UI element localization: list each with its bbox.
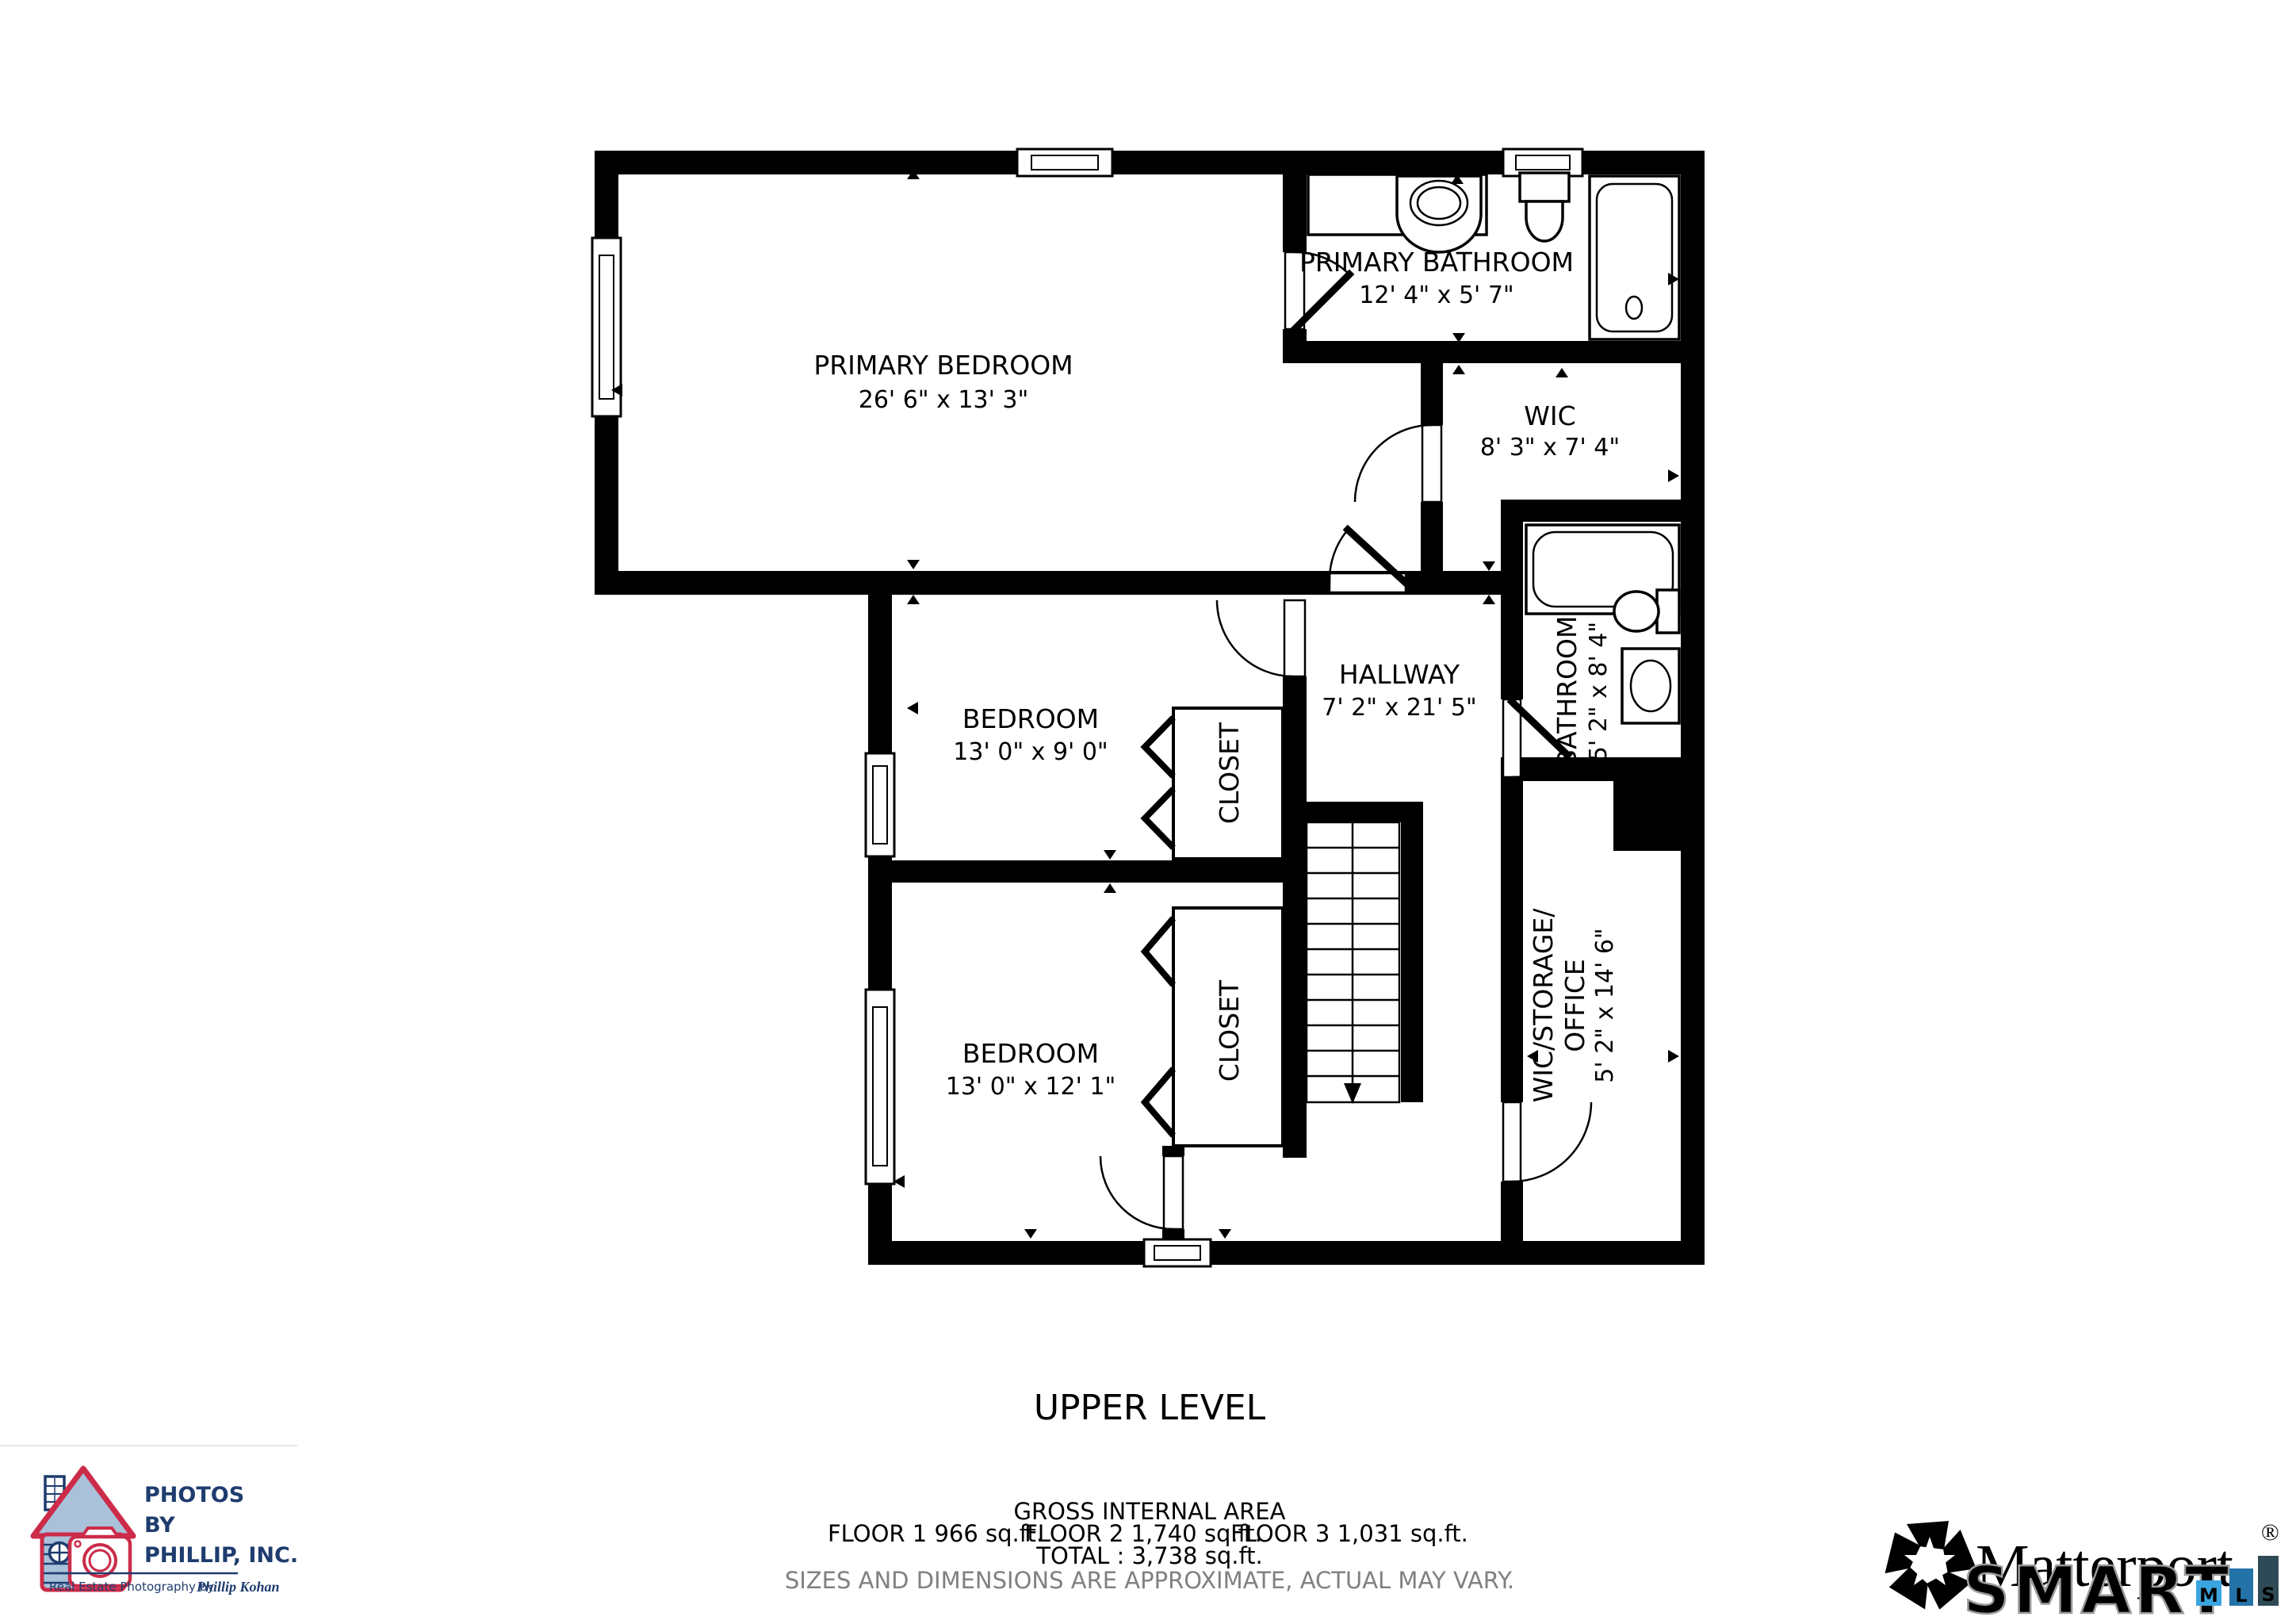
floor-plan: PRIMARY BEDROOM 26' 6" x 13' 3" PRIMARY … xyxy=(592,149,1705,1266)
mls-m: M xyxy=(2199,1584,2218,1607)
label-primary-bathroom: PRIMARY BATHROOM xyxy=(1299,247,1574,278)
logo-line2: BY xyxy=(144,1513,175,1538)
door-office xyxy=(1503,1102,1591,1182)
wall-office-left-upper xyxy=(1501,777,1523,1102)
label-office-line1: WIC/STORAGE/ xyxy=(1528,908,1559,1103)
logo-tagline-name: Phillip Kohan xyxy=(196,1579,280,1595)
dims-primary-bedroom: 26' 6" x 13' 3" xyxy=(859,386,1029,414)
door-wic xyxy=(1355,425,1441,502)
label-primary-bedroom: PRIMARY BEDROOM xyxy=(813,350,1073,381)
wall-bathroom-left-upper xyxy=(1501,500,1523,699)
label-hallway: HALLWAY xyxy=(1339,659,1460,690)
plan-footer: UPPER LEVEL GROSS INTERNAL AREA FLOOR 1 … xyxy=(785,1388,1514,1594)
wall-wic-left-upper xyxy=(1421,363,1443,425)
mls-l: L xyxy=(2235,1584,2247,1607)
sink-icon xyxy=(1622,649,1679,723)
dims-primary-bathroom: 12' 4" x 5' 7" xyxy=(1359,282,1513,309)
logo-divider-line xyxy=(0,1445,297,1446)
door-bedroom-bottom xyxy=(1100,1156,1183,1229)
wall-bedroom-divider xyxy=(868,860,1307,883)
house-camera-icon xyxy=(33,1469,133,1590)
wall-office-notch xyxy=(1613,781,1705,851)
mls-s: S xyxy=(2261,1584,2275,1606)
label-office-line2: OFFICE xyxy=(1559,959,1590,1052)
wall-bottom xyxy=(868,1241,1705,1265)
dims-bedroom-bottom: 13' 0" x 12' 1" xyxy=(946,1073,1116,1101)
window-primary-bedroom-top xyxy=(1017,149,1112,176)
wall-bathroom-top xyxy=(1501,500,1705,522)
logo-tagline: Real Estate Photography by xyxy=(49,1580,214,1594)
label-bedroom-top: BEDROOM xyxy=(962,703,1099,734)
dims-hallway: 7' 2" x 21' 5" xyxy=(1322,694,1476,722)
smart-mls-logo: SMART M L S xyxy=(1963,1553,2279,1624)
door-bedroom-top xyxy=(1217,600,1305,676)
logo-line3: PHILLIP, INC. xyxy=(144,1543,298,1568)
label-bathroom: BATHROOM xyxy=(1552,616,1582,768)
dims-bedroom-top: 13' 0" x 9' 0" xyxy=(953,738,1108,766)
toilet-icon xyxy=(1614,590,1679,633)
floor1-area: FLOOR 1 966 sq.ft. xyxy=(828,1520,1043,1547)
toilet-icon xyxy=(1520,173,1569,241)
window-bedroom-bottom-left xyxy=(866,990,894,1184)
wall-wic-left-lower xyxy=(1421,502,1443,595)
staircase xyxy=(1307,822,1399,1104)
dims-bathroom: 5' 2" x 8' 4" xyxy=(1585,622,1613,761)
photos-by-phillip-logo: PHOTOS BY PHILLIP, INC. Real Estate Phot… xyxy=(0,1445,298,1595)
label-closet-top: CLOSET xyxy=(1214,722,1245,824)
smart-word: SMART xyxy=(1963,1553,2233,1624)
level-title: UPPER LEVEL xyxy=(1034,1388,1266,1428)
floor3-area: FLOOR 3 1,031 sq.ft. xyxy=(1230,1520,1468,1547)
window-bottom-wall xyxy=(1144,1239,1211,1266)
label-bedroom-bottom: BEDROOM xyxy=(962,1038,1099,1069)
bathtub-icon xyxy=(1590,176,1679,339)
wall-office-left-lower xyxy=(1501,1182,1523,1243)
matterport-mark-icon xyxy=(1882,1521,1976,1612)
dims-office: 5' 2" x 14' 6" xyxy=(1591,928,1619,1082)
wall-primary-bath-divider-upper xyxy=(1283,151,1307,252)
wall-primary-bath-bottom xyxy=(1283,341,1705,363)
wall-hallway-west xyxy=(1283,676,1307,1158)
label-wic: WIC xyxy=(1524,400,1575,431)
door-primary-suite-entry xyxy=(1330,530,1406,592)
wall-stairs-right xyxy=(1401,802,1423,1102)
wall-right xyxy=(1681,151,1705,1265)
vanity-sink-icon xyxy=(1308,174,1487,252)
closet-bifold-doors xyxy=(1145,718,1173,1136)
matterport-registered-mark: ® xyxy=(2261,1519,2279,1545)
dims-wic: 8' 3" x 7' 4" xyxy=(1480,434,1620,462)
label-closet-bottom: CLOSET xyxy=(1214,979,1245,1082)
window-bedroom-top-left xyxy=(866,753,894,856)
logo-line1: PHOTOS xyxy=(144,1483,244,1507)
disclaimer: SIZES AND DIMENSIONS ARE APPROXIMATE, AC… xyxy=(785,1567,1514,1594)
total-area: TOTAL : 3,738 sq.ft. xyxy=(1035,1542,1262,1569)
